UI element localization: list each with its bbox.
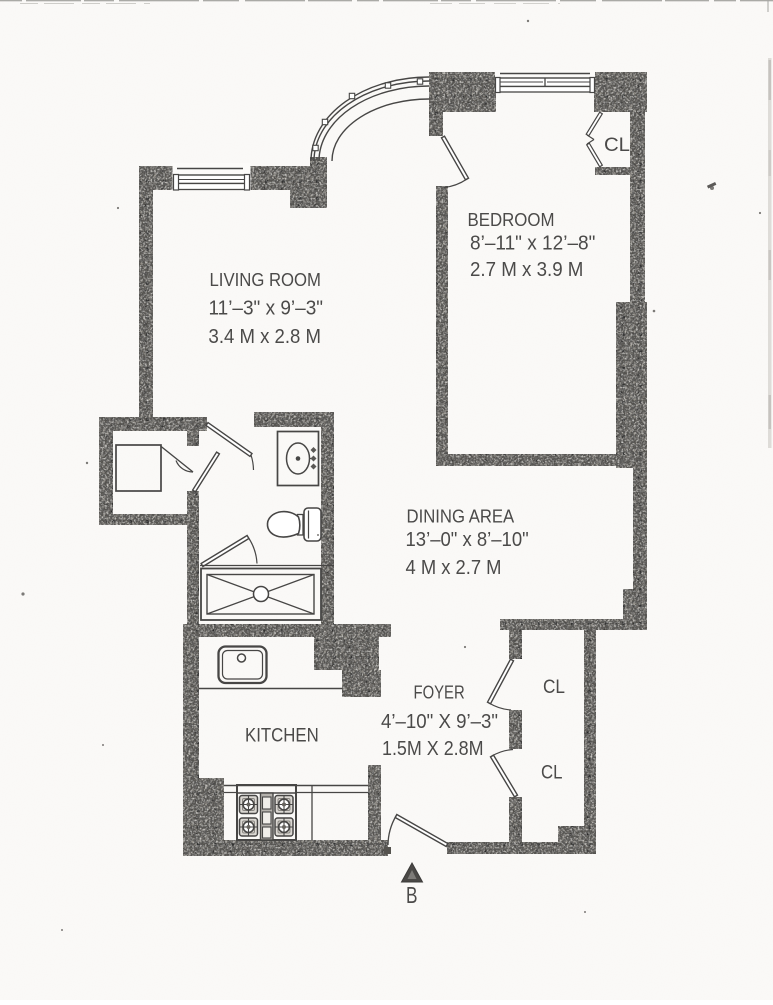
svg-text:2.7 M x 3.9 M: 2.7 M x 3.9 M: [470, 259, 583, 281]
svg-text:13’–0" x 8’–10": 13’–0" x 8’–10": [406, 529, 529, 551]
svg-text:FOYER: FOYER: [414, 682, 465, 703]
svg-text:CL: CL: [541, 763, 563, 784]
svg-text:8’–11" x 12’–8": 8’–11" x 12’–8": [470, 233, 595, 255]
svg-text:CL: CL: [543, 677, 565, 698]
svg-text:3.4 M x 2.8 M: 3.4 M x 2.8 M: [209, 326, 322, 348]
svg-text:4 M x 2.7 M: 4 M x 2.7 M: [406, 557, 502, 579]
svg-text:KITCHEN: KITCHEN: [245, 726, 319, 747]
svg-text:BEDROOM: BEDROOM: [468, 209, 555, 230]
svg-text:1.5M X 2.8M: 1.5M X 2.8M: [382, 738, 484, 760]
svg-text:4’–10" X 9’–3": 4’–10" X 9’–3": [381, 711, 498, 733]
svg-text:DINING AREA: DINING AREA: [407, 506, 515, 527]
svg-text:CL: CL: [604, 135, 630, 156]
svg-text:B: B: [406, 882, 418, 908]
svg-text:LIVING ROOM: LIVING ROOM: [210, 269, 322, 290]
svg-text:11’–3" x 9’–3": 11’–3" x 9’–3": [209, 298, 324, 320]
